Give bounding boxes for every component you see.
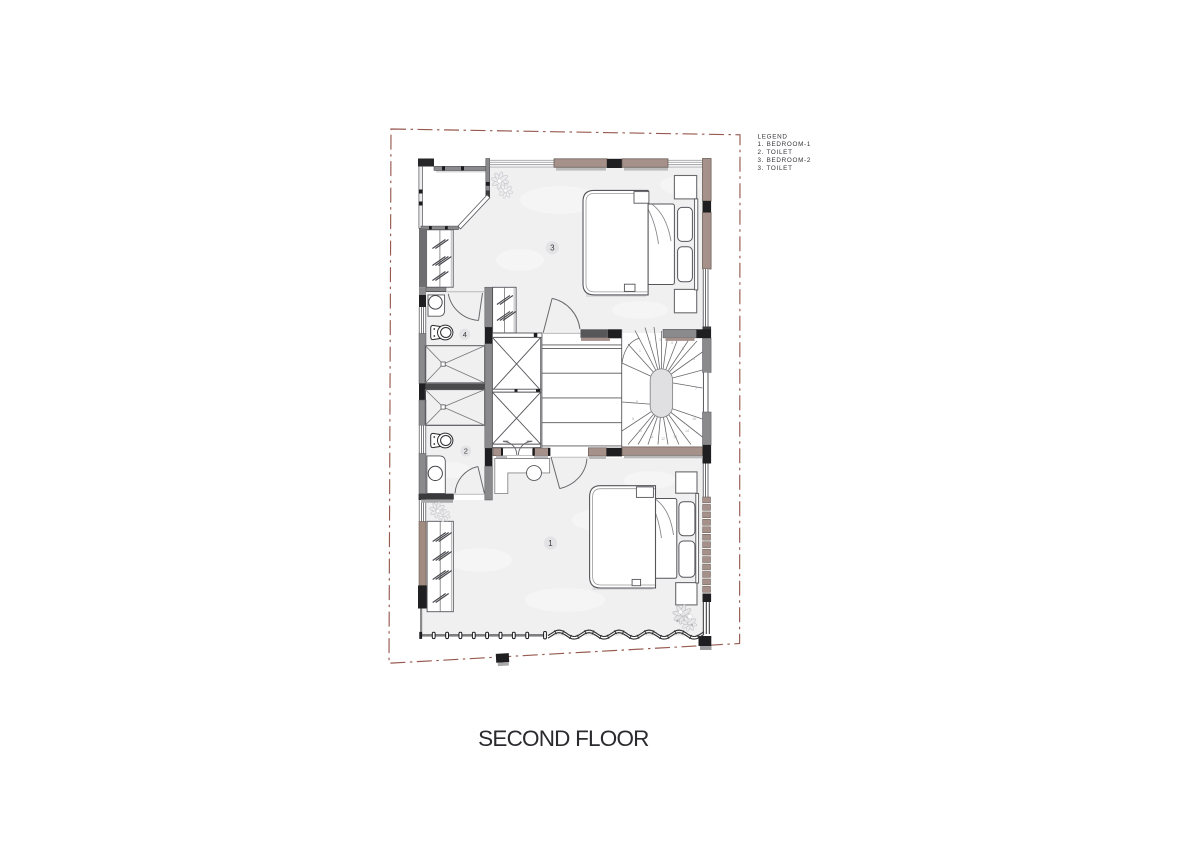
- svg-text:1: 1: [548, 539, 553, 548]
- svg-text:3. BEDROOM-2: 3. BEDROOM-2: [758, 157, 812, 164]
- svg-text:3. TOILET: 3. TOILET: [758, 165, 793, 172]
- svg-text:3: 3: [550, 244, 555, 253]
- svg-text:3: 3: [659, 338, 661, 342]
- svg-text:11: 11: [650, 435, 654, 439]
- svg-text:6: 6: [693, 357, 695, 361]
- svg-text:2. TOILET: 2. TOILET: [758, 149, 793, 156]
- svg-text:SECOND FLOOR: SECOND FLOOR: [478, 726, 649, 751]
- svg-text:15: 15: [692, 417, 696, 421]
- svg-text:2: 2: [464, 447, 468, 456]
- svg-text:LEGEND: LEGEND: [758, 133, 788, 140]
- svg-text:8: 8: [636, 400, 638, 404]
- svg-text:4: 4: [671, 341, 673, 345]
- svg-text:10: 10: [638, 429, 642, 433]
- svg-text:1: 1: [639, 349, 641, 353]
- svg-text:9: 9: [632, 417, 634, 421]
- svg-text:13: 13: [673, 435, 677, 439]
- svg-text:12: 12: [661, 437, 665, 441]
- svg-text:4: 4: [463, 330, 467, 339]
- svg-text:14: 14: [685, 429, 689, 433]
- svg-text:7: 7: [695, 387, 697, 391]
- svg-text:5: 5: [682, 347, 684, 351]
- svg-text:2: 2: [649, 341, 651, 345]
- svg-text:1. BEDROOM-1: 1. BEDROOM-1: [758, 141, 812, 148]
